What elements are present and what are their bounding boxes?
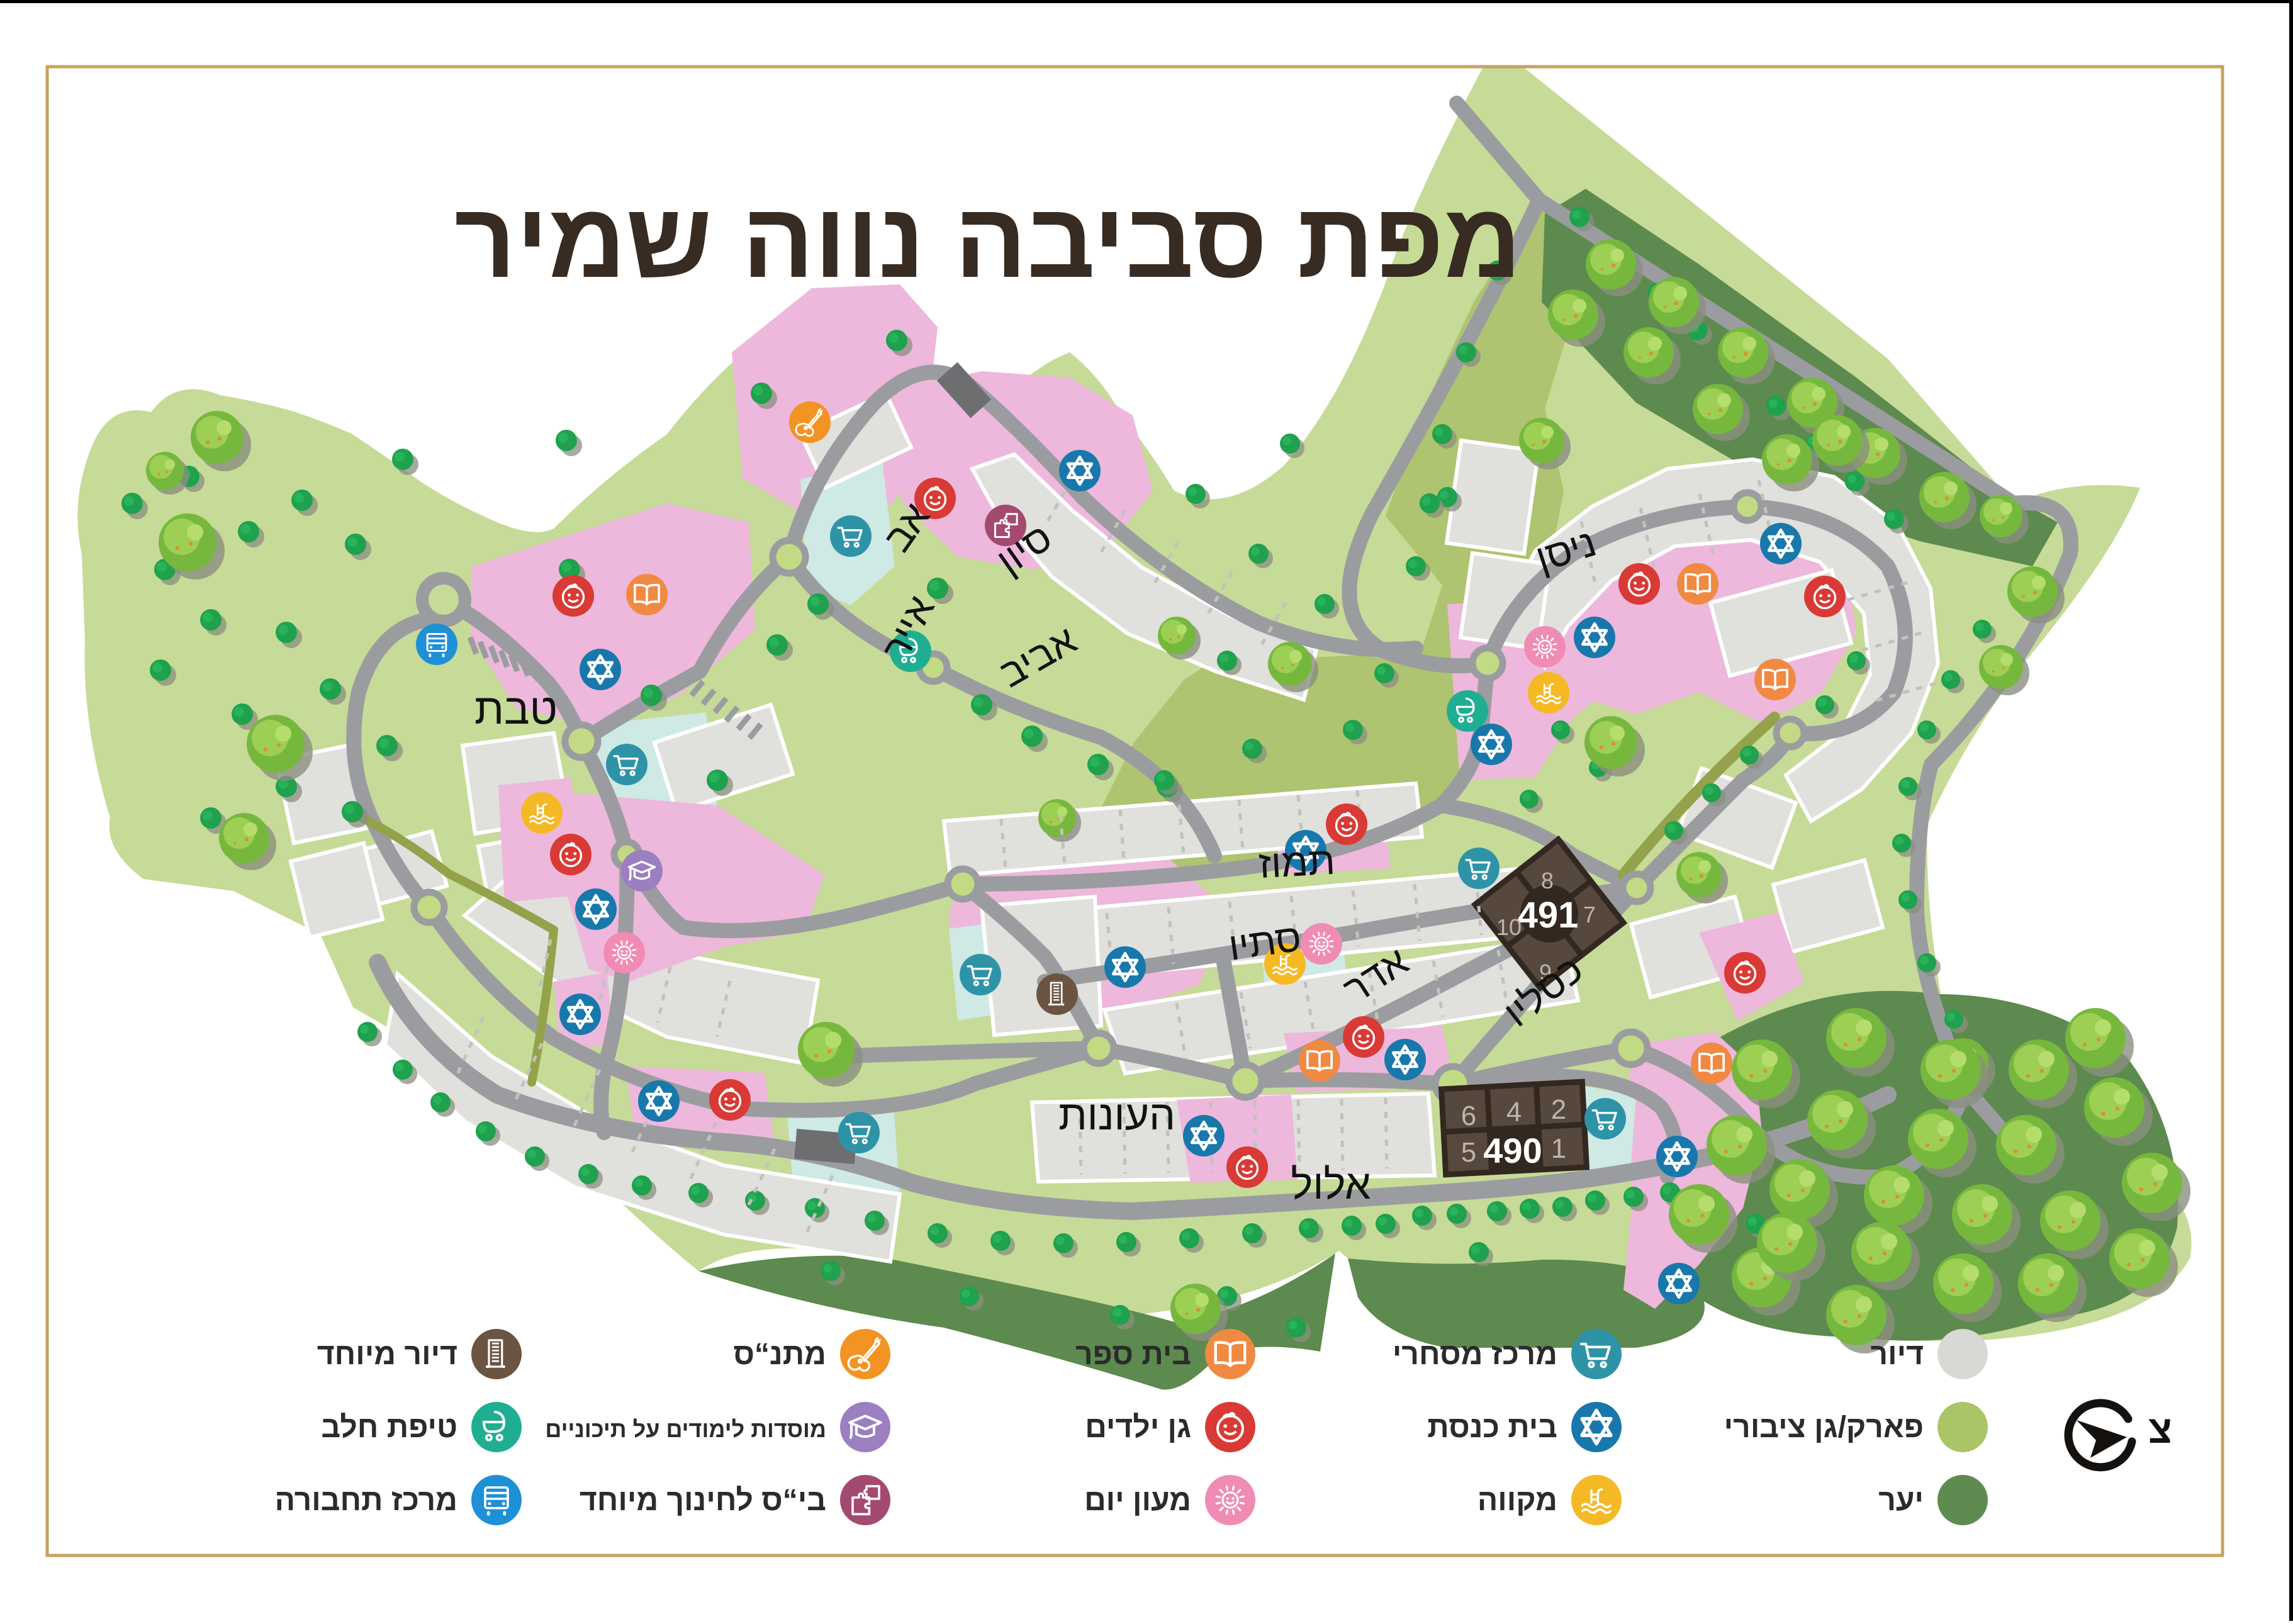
svg-text:אלול: אלול (1291, 1161, 1371, 1207)
svg-text:מרכז מסחרי: מרכז מסחרי (1393, 1338, 1557, 1371)
svg-text:דיור מיוחד: דיור מיוחד (317, 1338, 457, 1371)
svg-text:491: 491 (1518, 895, 1579, 936)
svg-text:6: 6 (1461, 1100, 1476, 1131)
svg-text:פארק/גן ציבורי: פארק/גן ציבורי (1724, 1411, 1924, 1444)
svg-text:4: 4 (1506, 1097, 1522, 1128)
svg-text:8: 8 (1541, 868, 1554, 893)
svg-text:10: 10 (1496, 914, 1522, 940)
svg-text:טיפת חלב: טיפת חלב (322, 1411, 457, 1444)
svg-text:מרכז תחבורה: מרכז תחבורה (275, 1484, 457, 1517)
svg-text:2: 2 (1551, 1094, 1566, 1125)
svg-text:1: 1 (1551, 1133, 1566, 1164)
svg-text:490: 490 (1483, 1131, 1542, 1170)
svg-text:בית כנסת: בית כנסת (1427, 1411, 1557, 1444)
svg-text:דיור: דיור (1870, 1338, 1924, 1371)
svg-text:צ: צ (2148, 1408, 2172, 1452)
svg-text:5: 5 (1461, 1137, 1476, 1168)
svg-text:טבת: טבת (474, 685, 558, 733)
svg-text:בית ספר: בית ספר (1075, 1338, 1191, 1371)
svg-text:יער: יער (1878, 1484, 1924, 1517)
svg-text:גן ילדים: גן ילדים (1085, 1411, 1191, 1444)
svg-text:העונות: העונות (1058, 1092, 1175, 1138)
svg-text:בי“ס לחינוך מיוחד: בי“ס לחינוך מיוחד (580, 1484, 826, 1517)
svg-text:מקווה: מקווה (1477, 1484, 1557, 1517)
svg-text:תמוז: תמוז (1257, 839, 1336, 887)
svg-text:מעון יום: מעון יום (1084, 1484, 1191, 1517)
svg-text:מתנ“ס: מתנ“ס (733, 1338, 826, 1371)
svg-text:7: 7 (1583, 902, 1596, 927)
svg-text:מוסדות לימודים על תיכוניים: מוסדות לימודים על תיכוניים (545, 1416, 826, 1442)
svg-text:מפת סביבה נווה שמיר: מפת סביבה נווה שמיר (454, 181, 1522, 300)
